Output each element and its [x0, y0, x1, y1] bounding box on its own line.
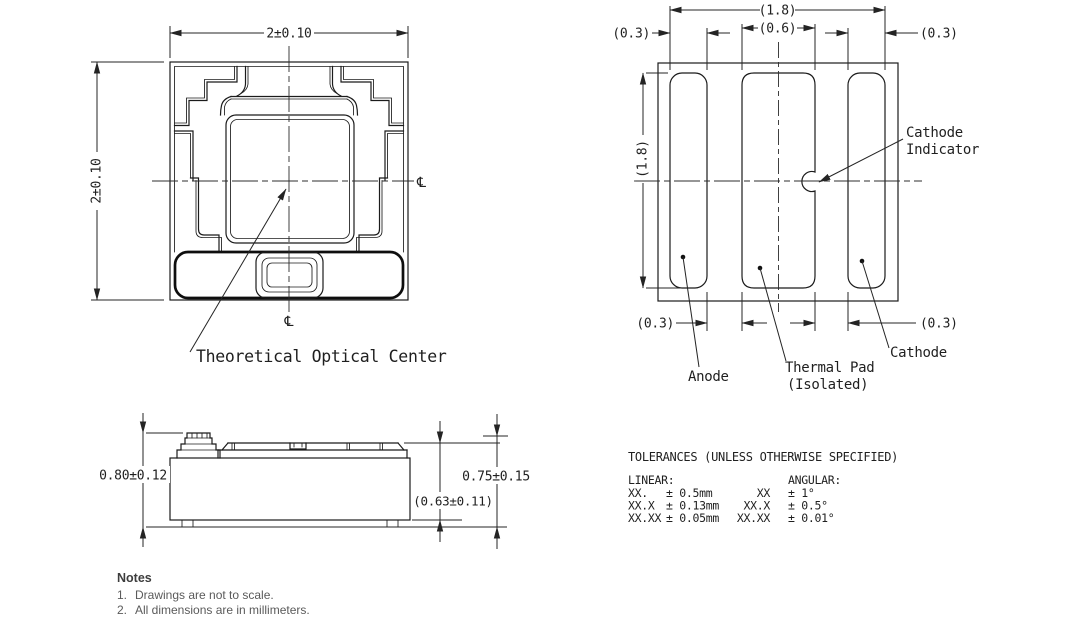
top-view-width-dim: 2±0.10	[266, 27, 311, 42]
centerline-symbol-right: ℄	[416, 175, 426, 191]
bottom-view-outline	[634, 42, 922, 312]
side-top-plate	[218, 443, 407, 458]
center-pad-dim: (0.6)	[759, 22, 797, 37]
optical-center-leader	[190, 189, 286, 352]
thermal-pad-label-line2: (Isolated)	[787, 377, 868, 393]
angular-row-tol: ± 0.01°	[788, 511, 834, 525]
linear-row-tol: ± 0.05mm	[666, 511, 719, 525]
package-outline-bottom	[658, 63, 898, 301]
note-text: Drawings are not to scale.	[135, 588, 274, 602]
pad-height-dim: (1.8)	[636, 140, 651, 178]
note-item: 1.Drawings are not to scale.	[117, 588, 310, 603]
pad-span-dim: (1.8)	[759, 4, 797, 19]
note-number: 1.	[117, 588, 135, 603]
cathode-indicator-label-line2: Indicator	[906, 142, 979, 158]
left-pad-dim: (0.3)	[612, 27, 650, 42]
top-view-height-dim: 2±0.10	[90, 158, 105, 203]
right-pad-dim: (0.3)	[920, 27, 958, 42]
note-text: All dimensions are in millimeters.	[135, 603, 310, 617]
cathode-label: Cathode	[890, 345, 947, 361]
anode-pad	[670, 73, 707, 288]
linear-row-code: XX.XX	[628, 511, 661, 525]
notes-heading: Notes	[117, 571, 310, 585]
cathode-indicator-leader	[819, 139, 903, 182]
centerline-symbol-bottom: ℄	[284, 314, 294, 330]
side-height-outer-dim: 0.75±0.15	[462, 470, 530, 485]
note-number: 2.	[117, 603, 135, 618]
top-view-dimensions: 2±0.10 2±0.10 ℄ ℄ Theoretical Optical Ce…	[90, 26, 447, 366]
side-view-dimensions: 0.80±0.12 0.75±0.15 (0.63±0.11)	[96, 413, 533, 549]
top-view-outline	[152, 46, 414, 316]
angular-row-code: XX.XX	[737, 511, 770, 525]
tolerances-table: TOLERANCES (UNLESS OTHERWISE SPECIFIED) …	[628, 450, 898, 525]
drawing-svg: 2±0.10 2±0.10 ℄ ℄ Theoretical Optical Ce…	[0, 0, 1080, 619]
side-feet	[182, 520, 398, 527]
gap-right-dim: (0.3)	[920, 317, 958, 332]
bottom-view-labels: Cathode Indicator Anode Thermal Pad (Iso…	[681, 125, 979, 393]
side-height-total-dim: 0.80±0.12	[99, 469, 167, 484]
bottom-view-dimensions: (1.8) (0.6) (0.3) (0.3) (1.8) (0.3) (0.3…	[612, 4, 957, 332]
optical-cavity	[226, 115, 354, 243]
cathode-pad	[848, 73, 885, 288]
tolerances-title: TOLERANCES (UNLESS OTHERWISE SPECIFIED)	[628, 450, 898, 464]
anode-label: Anode	[688, 369, 729, 385]
side-view-outline	[170, 433, 410, 527]
bottom-center-feature	[256, 252, 323, 298]
side-height-inner-dim: (0.63±0.11)	[413, 494, 492, 509]
thermal-pad-label-line1: Thermal Pad	[785, 360, 874, 376]
side-body	[170, 458, 410, 520]
angular-heading: ANGULAR:	[788, 473, 841, 487]
datasheet-mechanical-drawing: 2±0.10 2±0.10 ℄ ℄ Theoretical Optical Ce…	[0, 0, 1080, 619]
cathode-indicator-label-line1: Cathode	[906, 125, 963, 141]
notes-block: Notes 1.Drawings are not to scale. 2.All…	[117, 571, 310, 617]
gap-left-dim: (0.3)	[636, 317, 674, 332]
side-lens-bump	[177, 433, 220, 458]
linear-heading: LINEAR:	[628, 473, 674, 487]
note-item: 2.All dimensions are in millimeters.	[117, 603, 310, 618]
optical-center-label: Theoretical Optical Center	[196, 347, 447, 366]
